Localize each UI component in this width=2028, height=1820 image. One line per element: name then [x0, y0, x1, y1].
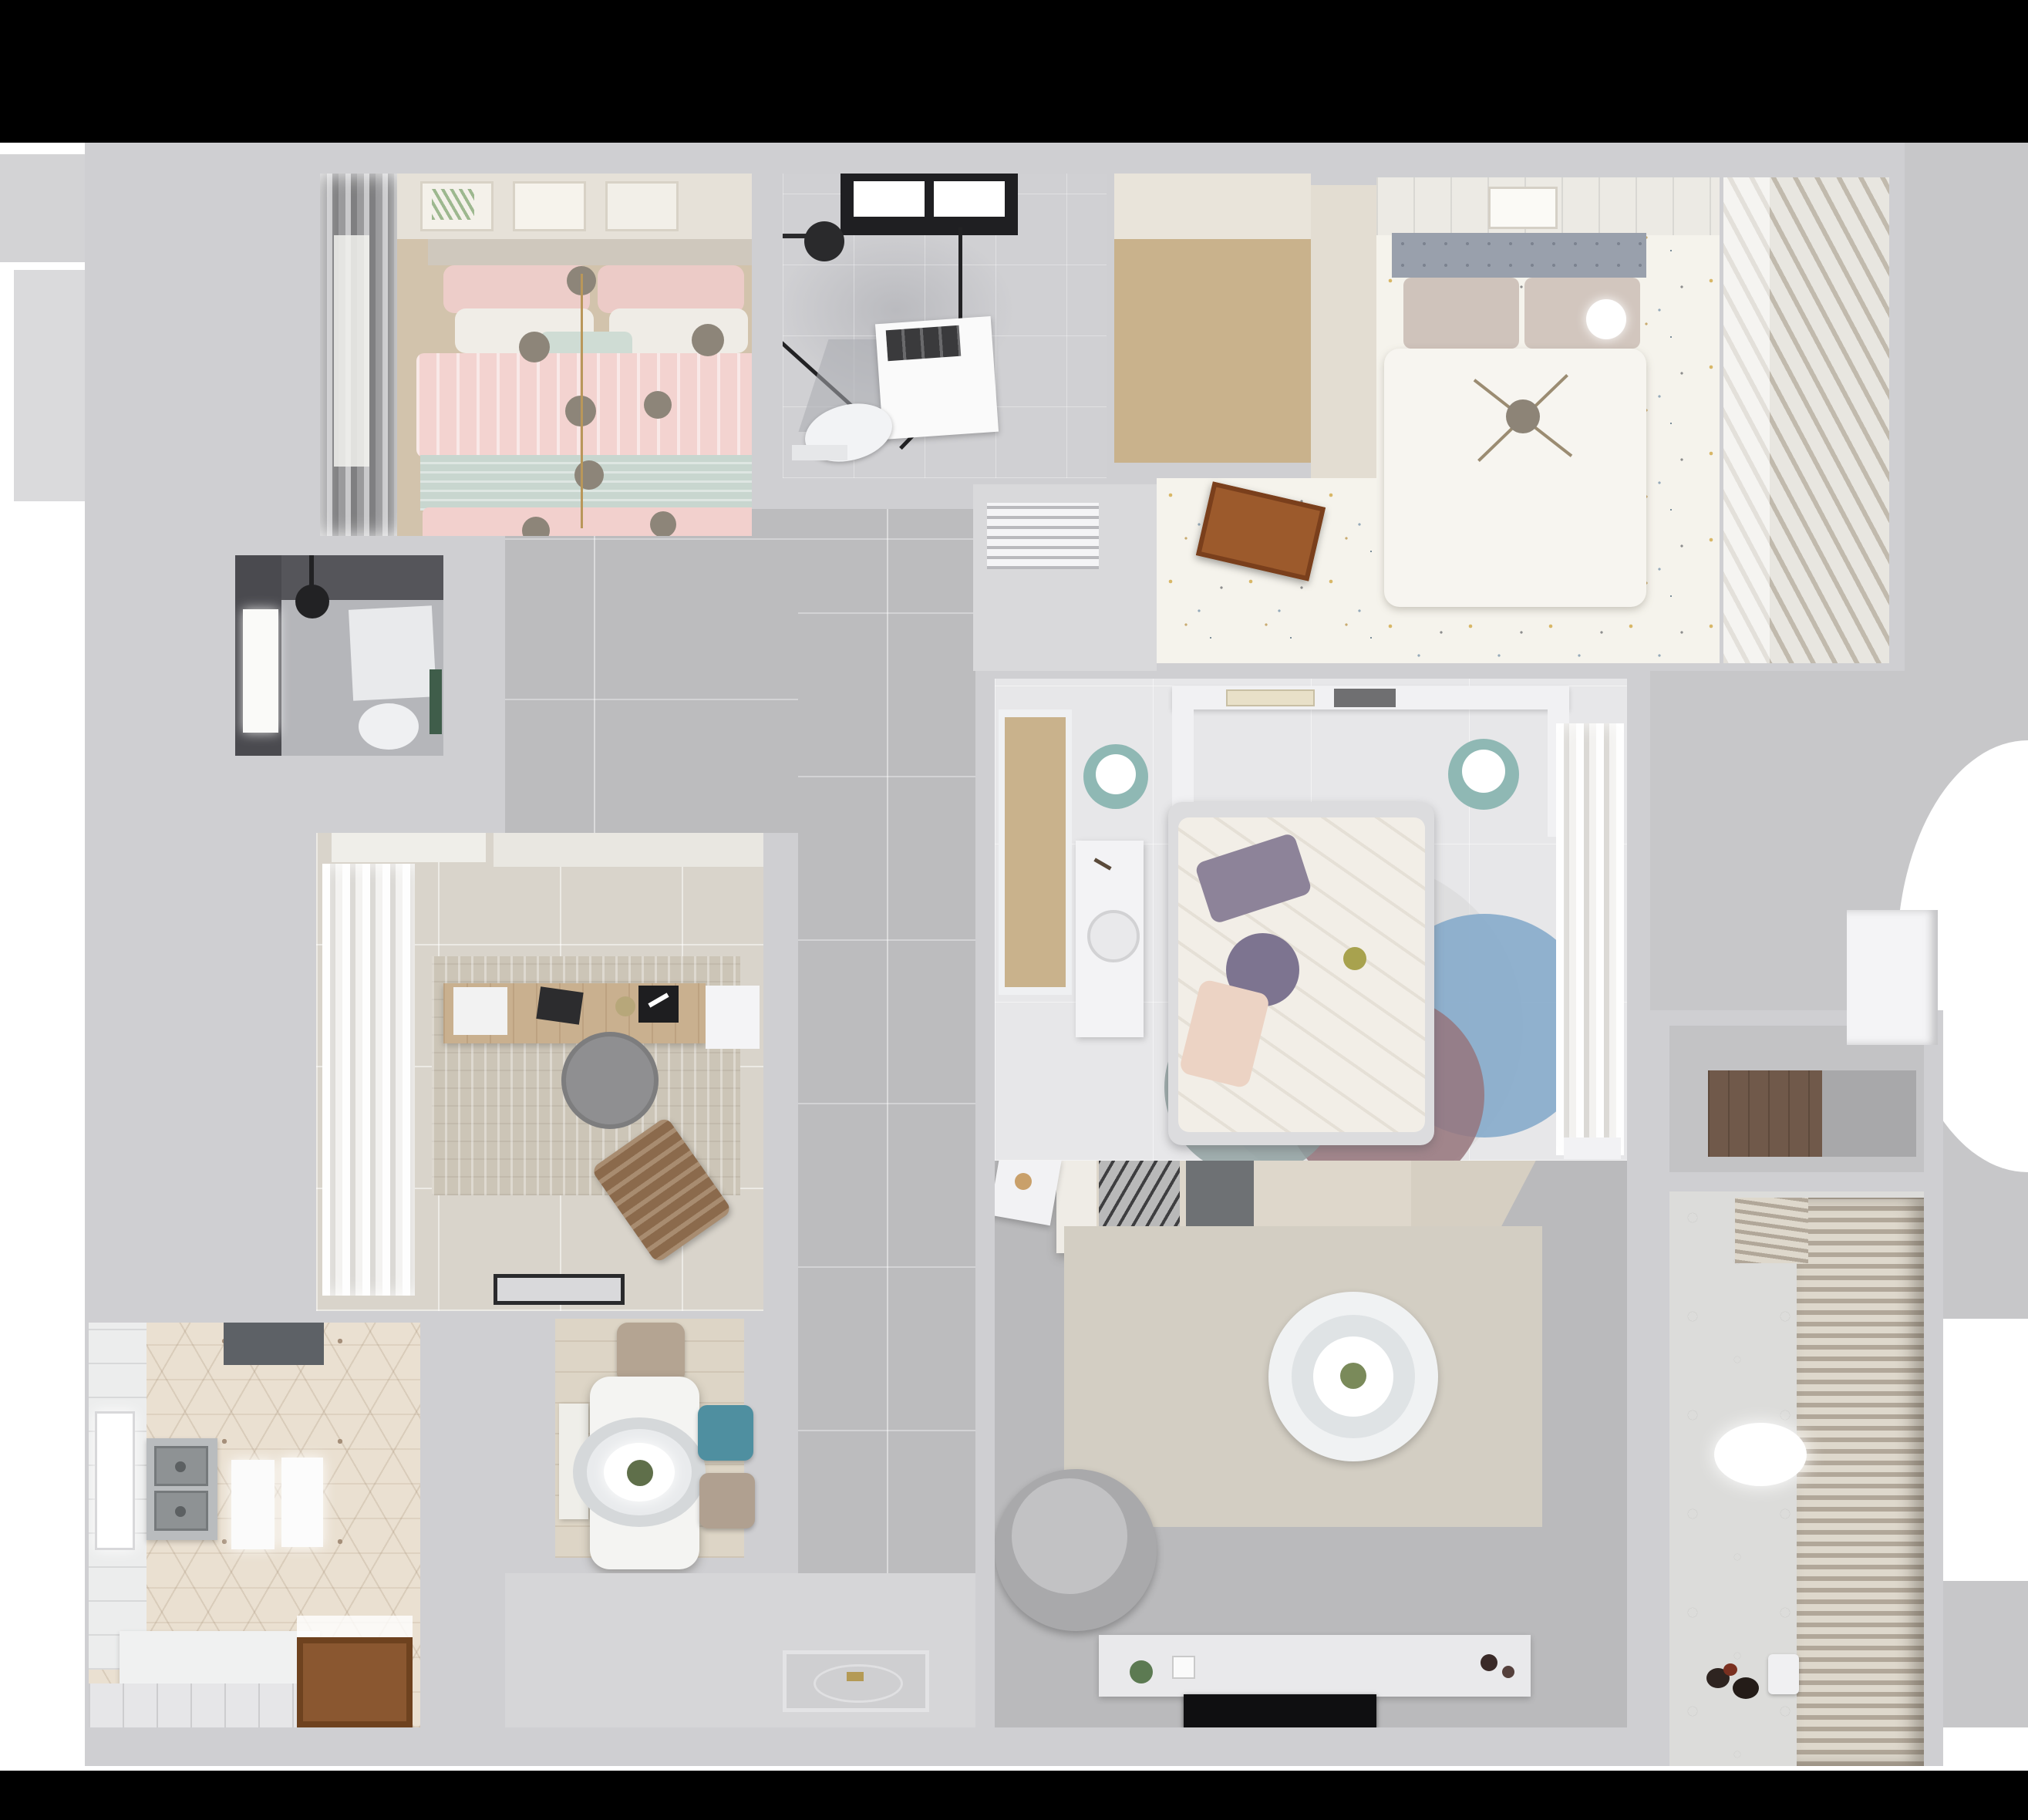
dining-chair-beige [617, 1323, 685, 1378]
kitchen-window [95, 1411, 135, 1550]
hallway-vertical [798, 509, 975, 1727]
study-curtains [322, 864, 415, 1296]
kitchen-door-threshold [297, 1616, 413, 1637]
bed-headboard-tufted [1392, 233, 1646, 278]
wardrobe-highlight [1723, 177, 1770, 663]
counter-light-mat [231, 1460, 275, 1549]
desk-plant [615, 996, 635, 1016]
niche-gray-counter [1822, 1070, 1916, 1157]
side-table-flower [1015, 1173, 1032, 1190]
table-plant [627, 1460, 653, 1486]
room-kitchen [89, 1323, 420, 1727]
art-frame [605, 181, 679, 231]
watering-can [1768, 1654, 1799, 1694]
room-study [316, 833, 763, 1311]
side-white-panel [706, 986, 760, 1049]
console-speaker [1481, 1654, 1497, 1671]
desk-chair-white [1087, 910, 1140, 962]
beam-top [494, 833, 763, 867]
range-hood [224, 1323, 324, 1365]
cream-wall-band [1311, 185, 1376, 478]
bedside-lamp [1586, 299, 1626, 339]
sink-drain [175, 1506, 186, 1517]
room-closet-hall [1114, 174, 1311, 463]
floorplan-render [0, 0, 2028, 1820]
doormat-dark [494, 1274, 625, 1305]
shower-arm [309, 555, 314, 589]
duvet-foot-pink [423, 507, 752, 536]
room-dining [505, 1319, 798, 1573]
letterbox-bottom [0, 1771, 2028, 1820]
shower-head-icon [295, 585, 329, 618]
duvet-white [1384, 349, 1646, 607]
niche-wood-cabinet [1708, 1070, 1822, 1157]
counter-light-mat [281, 1458, 323, 1547]
exterior-left-strip [14, 270, 86, 501]
kitchen-wood-door [297, 1637, 413, 1727]
duvet-flower-accent [1343, 947, 1366, 970]
tv-panel [1184, 1694, 1376, 1727]
art-leaf-motif [432, 189, 474, 220]
skylight-pane [854, 181, 925, 217]
small-white-box [1564, 1137, 1621, 1159]
room-bathroom-small [235, 555, 443, 756]
toy-red [1723, 1663, 1737, 1676]
entry-mat-keys [847, 1672, 864, 1681]
entry-mat-ornament [814, 1664, 903, 1703]
laptop [536, 986, 583, 1024]
shower-head-icon [804, 221, 844, 261]
chandelier-bulb [650, 511, 676, 536]
plant-accent [430, 669, 442, 734]
sheer-curtains-right [1556, 723, 1624, 1155]
sink-drain [175, 1461, 186, 1472]
chandelier-stem [581, 274, 583, 528]
ceiling-light [1714, 1423, 1807, 1486]
room-bathroom-main [783, 174, 1107, 478]
toy-dark [1733, 1677, 1759, 1699]
kitchen-floor-strip [89, 1684, 297, 1727]
bottom-counter [120, 1631, 320, 1685]
blinds-corner [1735, 1198, 1808, 1263]
side-table-white [995, 1161, 1062, 1225]
bed-headboard [428, 239, 752, 265]
chandelier-bulb [644, 391, 672, 419]
pillow-pink [443, 265, 590, 313]
shelf-box [1334, 689, 1396, 707]
chandelier-bulb [692, 324, 724, 356]
shower-arm [783, 234, 818, 238]
white-door-leaf [1847, 910, 1938, 1045]
console-deco-box [1172, 1656, 1195, 1679]
chandelier-bulb [574, 460, 604, 490]
desk-chair [561, 1032, 659, 1129]
desk-art-frame [638, 986, 679, 1023]
armchair-cushion [1012, 1478, 1127, 1594]
shelf-top [332, 833, 486, 862]
drying-blinds [1797, 1198, 1924, 1766]
letterbox-top [0, 0, 2028, 143]
skylight-pane [934, 181, 1005, 217]
washer-control-panel [886, 325, 962, 362]
desk-paper [453, 987, 507, 1035]
shower-mat [349, 605, 436, 700]
window-glow [243, 609, 278, 733]
chandelier-bulb [519, 332, 550, 362]
closet-wood-floor [1114, 239, 1311, 463]
dining-chair-beige [699, 1473, 755, 1528]
ac-vent-grille-icon [987, 503, 1099, 569]
pouf-top [1096, 754, 1136, 794]
room-bedroom-center [995, 679, 1627, 1161]
room-living [995, 1161, 1627, 1727]
shelf-books [1226, 689, 1315, 706]
hallway-branch [505, 509, 798, 833]
console-plant [1130, 1660, 1153, 1684]
room-balcony [1669, 1191, 1924, 1766]
window-glow [334, 235, 369, 467]
room-bedroom-master [1376, 177, 1720, 663]
toilet-tank [792, 445, 847, 460]
room-wardrobe [1723, 177, 1889, 663]
dining-chair-teal [698, 1405, 753, 1461]
art-frame [513, 181, 586, 231]
pouf-top [1462, 750, 1505, 793]
exterior-right-bottom [1943, 1581, 2028, 1727]
exterior-left-wedge [0, 154, 86, 262]
tv-console [1099, 1635, 1531, 1697]
pillow-beige [1403, 278, 1519, 349]
room-bedroom-pink [320, 174, 752, 536]
toilet-bowl [359, 703, 419, 750]
letterbox-bottom-right-gap [1959, 1727, 2028, 1771]
pillow-pink [598, 265, 744, 313]
console-speaker [1502, 1666, 1514, 1678]
coffee-table-plant [1340, 1363, 1366, 1389]
room-storage-niche [1669, 1026, 1924, 1172]
chandelier-hub [1506, 399, 1540, 433]
wood-nook-floor [1005, 717, 1066, 987]
art-frame [1488, 187, 1558, 229]
